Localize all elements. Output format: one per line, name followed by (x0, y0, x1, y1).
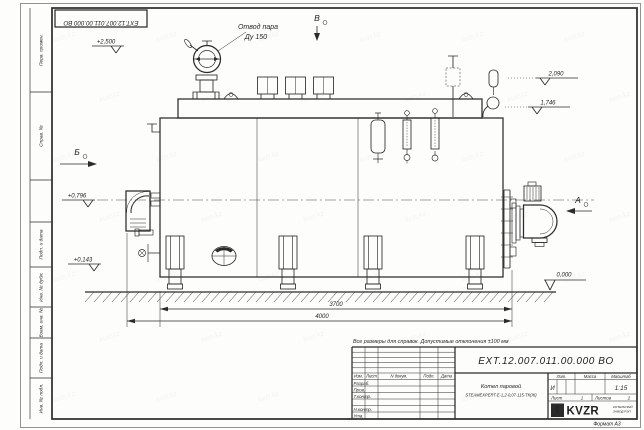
steam-outlet-leader (218, 32, 246, 51)
dimension-4000: 4000 (127, 233, 512, 327)
watermark-text: kvzr.kz (608, 330, 631, 343)
title-block: Все размеры для справок. Допустимые откл… (352, 339, 637, 428)
sheet-label: Лист (550, 396, 563, 401)
watermark-text: kvzr.kz (359, 30, 382, 43)
watermark-text: kvzr.kz (461, 30, 484, 43)
frame-margin-columns: Перв. примен. Справ. № Подп. и дата Инв.… (30, 8, 52, 419)
valve-stem-assembly (446, 56, 460, 117)
corner-stamp: ЕХТ.12.007.011.00.000 ВО (55, 10, 147, 27)
boiler-top-platform (178, 99, 482, 118)
corner-stamp-number: ЕХТ.12.007.011.00.000 ВО (63, 19, 138, 26)
watermark-text: kvzr.kz (257, 390, 280, 403)
watermark-text: kvzr.kz (155, 270, 178, 283)
dimension-3700: 3700 (160, 270, 512, 327)
watermark-text: kvzr.kz (98, 330, 121, 343)
row-nkontr: Н.контр. (354, 407, 373, 412)
ground-hatch (85, 292, 553, 302)
col-izm: Изм. (354, 374, 363, 379)
row-razrab: Разраб. (354, 381, 370, 386)
steam-outlet-label-line1: Отвод пара (238, 23, 278, 31)
watermark-text: kvzr.kz (404, 210, 427, 223)
sheets-value: 2 (627, 396, 631, 401)
watermark-text: kvzr.kz (155, 150, 178, 163)
watermark-text: kvzr.kz (155, 390, 178, 403)
support-skid-2 (279, 236, 297, 289)
logo-text: KVZR (567, 406, 600, 418)
pressure-capsule (489, 70, 498, 95)
drain-cock (147, 124, 160, 132)
watermark-text: kvzr.kz (200, 90, 223, 103)
watermark-text: kvzr.kz (461, 150, 484, 163)
row-utv: Утв. (354, 413, 364, 418)
watermark-text: kvzr.kz (506, 330, 529, 343)
steam-outlet-valve (183, 38, 220, 99)
mass-header: Масса (584, 374, 597, 379)
support-skids (166, 236, 484, 289)
col-podp-data-1: Подп. и дата (39, 229, 45, 259)
elev-2090-label: 2,090 (547, 72, 564, 78)
doc-number: ЕХТ.12.007.011.00.000 ВО (478, 356, 613, 367)
elev-0143-label: +0,143 (74, 258, 93, 264)
watermark-text: kvzr.kz (257, 30, 280, 43)
watermark-text: kvzr.kz (608, 90, 631, 103)
col-sprav-no: Справ. № (39, 125, 45, 147)
col-list: Лист (365, 374, 377, 379)
watermark-text: kvzr.kz (608, 210, 631, 223)
view-v-label: В (314, 13, 320, 23)
reference-note: Все размеры для справок. Допустимые откл… (353, 339, 509, 345)
col-ndocum: N докум. (391, 374, 408, 379)
boiler-body (160, 118, 503, 277)
siphon-loop (483, 97, 499, 117)
watermark-text: kvzr.kz (404, 90, 427, 103)
logo-kvzr: КВЗР KVZR КОТЕЛЬНЫЙ ЗАВОД РЭП (551, 404, 633, 418)
boiler-panel-seams (257, 118, 358, 277)
drawing-sheet: Перв. примен. Справ. № Подп. и дата Инв.… (0, 0, 644, 430)
level-gauge-2 (431, 109, 439, 161)
view-arrow-a: А (566, 195, 592, 214)
format-label: Формат А3 (593, 422, 621, 428)
watermark-text: kvzr.kz (302, 330, 325, 343)
burner-motor (524, 186, 541, 201)
support-skid-1 (166, 236, 184, 289)
elev-0796-label: +0,796 (68, 194, 87, 200)
elevation-mark-0796: +0,796 (62, 194, 95, 208)
col-podp-data-2: Подп. и дата (39, 343, 45, 373)
elev-2500-label: +2,500 (97, 40, 116, 46)
watermark-text: kvzr.kz (155, 30, 178, 43)
watermark-text: kvzr.kz (359, 150, 382, 163)
elevation-mark-1746: 1,746 (505, 101, 570, 115)
row-prov: Пров. (354, 387, 366, 392)
watermark-texture: kvzr.kzkvzr.kzkvzr.kzkvzr.kzkvzr.kzkvzr.… (53, 30, 631, 403)
dim-4000-label: 4000 (315, 314, 329, 320)
watermark-text: kvzr.kz (200, 330, 223, 343)
boiler-side-view: Отвод пара Ду 150 (60, 13, 594, 327)
lifting-lug-left (224, 93, 238, 100)
watermark-text: kvzr.kz (563, 30, 586, 43)
col-perv-primen: Перв. примен. (39, 34, 45, 66)
logo-line1: КОТЕЛЬНЫЙ (613, 405, 633, 409)
lit-header: Лит. (556, 374, 567, 379)
air-duct-elbow (126, 191, 160, 231)
product-name-line1: Котел паровой (481, 383, 521, 390)
watermark-text: kvzr.kz (257, 150, 280, 163)
view-arrow-v: В (314, 13, 327, 41)
watermark-text: kvzr.kz (563, 390, 586, 403)
watermark-text: kvzr.kz (257, 270, 280, 283)
lifting-lug-right (459, 93, 473, 100)
col-inv-dubl: Инв. № дубл. (39, 272, 45, 302)
watermark-text: kvzr.kz (53, 270, 76, 283)
watermark-text: kvzr.kz (506, 90, 529, 103)
watermark-text: kvzr.kz (98, 210, 121, 223)
logo-mark: КВЗР (556, 405, 560, 414)
col-inv-podl: Инв. № подл. (39, 384, 45, 414)
watermark-text: kvzr.kz (563, 150, 586, 163)
view-a-label: А (574, 195, 581, 205)
logo-line2: ЗАВОД РЭП (613, 410, 632, 414)
elevation-mark-2500: +2,500 (92, 40, 124, 54)
sheets-label: Листов (594, 396, 612, 401)
col-vzam-inv: Взам. инв. № (39, 308, 45, 338)
elevation-mark-0143: +0,143 (68, 258, 101, 272)
scale-header: Масштаб (611, 374, 631, 379)
col-podp: Подп. (423, 374, 434, 379)
watermark-text: kvzr.kz (53, 30, 76, 43)
watermark-text: kvzr.kz (200, 210, 223, 223)
watermark-text: kvzr.kz (98, 90, 121, 103)
watermark-text: kvzr.kz (53, 390, 76, 403)
elevation-mark-2090: 2,090 (508, 72, 578, 86)
elev-1746-label: 1,746 (540, 101, 556, 107)
manhole (212, 247, 236, 266)
watermark-text: kvzr.kz (302, 210, 325, 223)
col-data: Дата (440, 374, 453, 379)
scale-value: 1:15 (615, 385, 628, 392)
watermark-text: kvzr.kz (53, 150, 76, 163)
lower-left-fittings (135, 229, 160, 262)
lit-value: И (550, 386, 555, 392)
dim-3700-label: 3700 (329, 302, 343, 308)
